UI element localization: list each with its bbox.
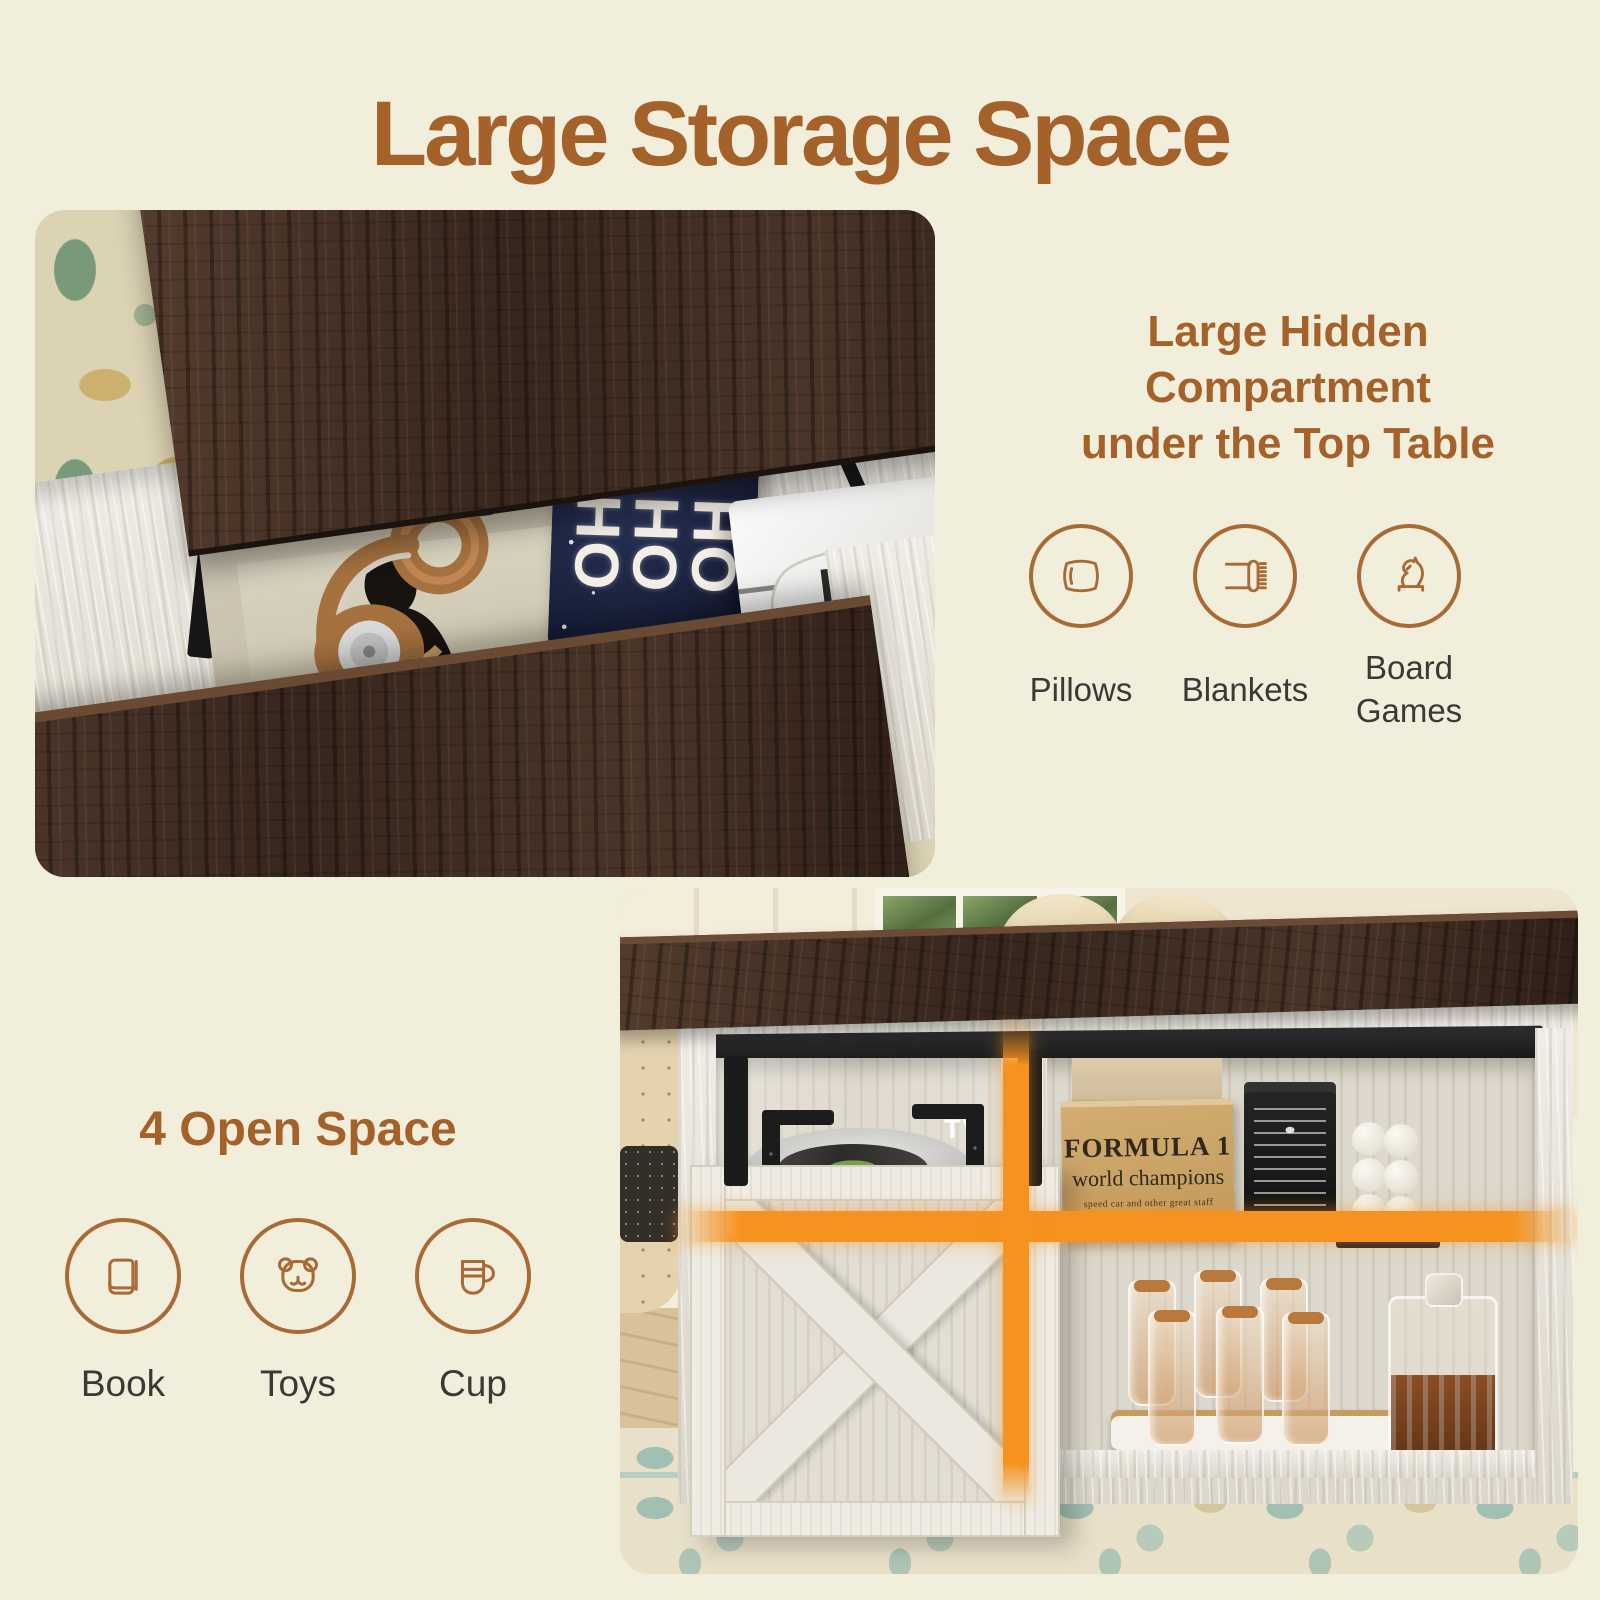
highlight-bar-vertical	[1003, 1028, 1029, 1500]
formula-box-tagline: speed car and other great staff	[1084, 1197, 1214, 1209]
feature-label: Cup	[439, 1354, 507, 1414]
tin-label-art	[1254, 1108, 1326, 1218]
infographic-canvas: Large Storage Space CEREAL	[0, 0, 1600, 1600]
chess-knight-icon	[1357, 524, 1461, 628]
door-bracket-arm	[912, 1104, 984, 1119]
blanket-icon	[1193, 524, 1297, 628]
open-space-features: Book Toys Cup	[28, 1218, 568, 1414]
feature-board-games: Board Games	[1334, 524, 1484, 736]
formula-box-subtitle: world champions	[1072, 1163, 1225, 1192]
drinking-glass	[1216, 1306, 1264, 1444]
feature-blankets: Blankets	[1170, 524, 1320, 736]
feature-label: Board Games	[1334, 644, 1484, 736]
feature-label: Pillows	[1030, 644, 1133, 736]
hidden-compartment-heading: Large Hidden Compartment under the Top T…	[1000, 304, 1576, 472]
candle-bubble	[1384, 1124, 1418, 1158]
fireplace-screen	[620, 1146, 678, 1242]
feature-cup: Cup	[396, 1218, 551, 1414]
feature-book: Book	[46, 1218, 201, 1414]
barn-door-table-photo: TV FORMULA 1 world champions speed car a…	[620, 888, 1578, 1574]
cup-icon	[415, 1218, 531, 1334]
door-hanger-strap	[724, 1056, 748, 1186]
feature-toys: Toys	[221, 1218, 376, 1414]
pillow-icon	[1029, 524, 1133, 628]
candle-bubble	[1384, 1160, 1418, 1194]
open-space-heading: 4 Open Space	[28, 1102, 568, 1157]
lift-top-table-photo: CEREAL	[35, 210, 935, 877]
feature-label: Toys	[260, 1354, 336, 1414]
hidden-compartment-features: Pillows Blankets Board Game	[955, 524, 1535, 736]
feature-label: Blankets	[1182, 644, 1309, 736]
highlight-bar-horizontal	[678, 1211, 1573, 1242]
candle-bubble	[1352, 1122, 1386, 1156]
formula-box-title: FORMULA 1	[1064, 1130, 1232, 1164]
feature-pillows: Pillows	[1006, 524, 1156, 736]
heading-line: Large Hidden	[1147, 307, 1428, 356]
teddy-bear-icon	[240, 1218, 356, 1334]
drinking-glass	[1148, 1310, 1196, 1446]
heading-line: under the Top Table	[1081, 419, 1495, 468]
page-title: Large Storage Space	[0, 82, 1600, 187]
feature-label: Book	[81, 1354, 165, 1414]
cabinet-right-leg	[1535, 1028, 1573, 1504]
heading-line: Compartment	[1145, 363, 1431, 412]
drinking-glass	[1282, 1312, 1330, 1446]
door-frame-bottom	[690, 1501, 1060, 1537]
decanter-stopper	[1425, 1273, 1463, 1307]
book-icon	[65, 1218, 181, 1334]
candle-bubble	[1352, 1158, 1386, 1192]
door-bracket-arm	[762, 1110, 834, 1125]
